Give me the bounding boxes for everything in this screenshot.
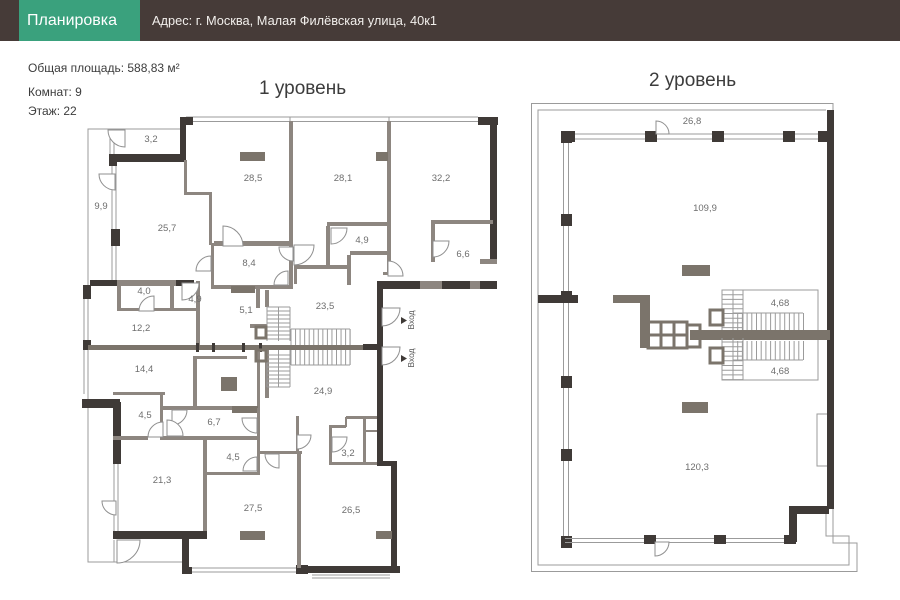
svg-text:Вход: Вход [406, 310, 416, 329]
svg-text:14,4: 14,4 [135, 364, 154, 375]
svg-text:9,9: 9,9 [94, 201, 107, 212]
svg-text:4,5: 4,5 [138, 410, 151, 421]
svg-text:6,7: 6,7 [207, 417, 220, 428]
svg-text:109,9: 109,9 [693, 203, 717, 214]
svg-text:4,9: 4,9 [188, 294, 201, 305]
svg-text:26,8: 26,8 [683, 116, 702, 127]
svg-text:21,3: 21,3 [153, 475, 172, 486]
svg-text:4,68: 4,68 [771, 366, 790, 377]
svg-text:5,1: 5,1 [239, 305, 252, 316]
svg-text:8,4: 8,4 [242, 258, 255, 269]
svg-text:4,0: 4,0 [137, 286, 150, 297]
svg-text:24,9: 24,9 [314, 386, 333, 397]
svg-text:12,2: 12,2 [132, 323, 151, 334]
svg-text:23,5: 23,5 [316, 301, 335, 312]
svg-text:32,2: 32,2 [432, 173, 451, 184]
svg-text:6,6: 6,6 [456, 249, 469, 260]
svg-text:Вход: Вход [406, 348, 416, 367]
svg-text:3,2: 3,2 [341, 448, 354, 459]
svg-text:4,5: 4,5 [226, 452, 239, 463]
svg-text:26,5: 26,5 [342, 505, 361, 516]
svg-text:27,5: 27,5 [244, 503, 263, 514]
svg-text:25,7: 25,7 [158, 223, 177, 234]
svg-text:4,68: 4,68 [771, 298, 790, 309]
svg-text:120,3: 120,3 [685, 462, 709, 473]
svg-text:3,2: 3,2 [144, 134, 157, 145]
svg-text:28,5: 28,5 [244, 173, 263, 184]
svg-text:28,1: 28,1 [334, 173, 353, 184]
svg-text:4,9: 4,9 [355, 235, 368, 246]
